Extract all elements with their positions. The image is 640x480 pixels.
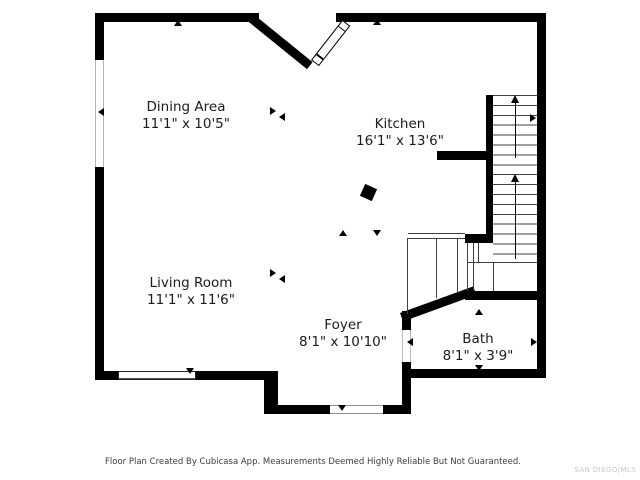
dimension-arrow-down-icon <box>186 368 194 374</box>
dimension-arrow-up-icon <box>475 309 483 315</box>
wall-diagonal-bath <box>400 286 476 321</box>
stairs-arrow-line <box>515 182 516 259</box>
room-name: Bath <box>443 331 514 348</box>
dimension-arrow-left-icon <box>98 108 104 116</box>
room-name: Kitchen <box>356 116 444 133</box>
dimension-arrow-left-icon <box>98 280 104 288</box>
room-dimensions: 8'1" x 3'9" <box>443 348 514 365</box>
room-label-dining: Dining Area 11'1" x 10'5" <box>142 99 230 133</box>
wall-left-lower <box>95 167 104 380</box>
dimension-arrow-left-icon <box>279 275 285 283</box>
column-marker <box>360 184 377 201</box>
stair-winder-line <box>436 238 437 298</box>
wall-stairs-stub <box>465 234 493 243</box>
dimension-arrow-up-icon <box>339 230 347 236</box>
dimension-arrow-down-icon <box>373 230 381 236</box>
dimension-arrow-right-icon <box>270 269 276 277</box>
window-cap-line <box>316 54 323 60</box>
room-label-living: Living Room 11'1" x 11'6" <box>147 275 235 309</box>
bath-door-opening <box>402 330 411 362</box>
window-bottom <box>118 371 196 380</box>
stair-winder-line <box>493 262 494 291</box>
dimension-arrow-up-icon <box>373 19 381 25</box>
wall-bath-bottom <box>402 369 546 378</box>
stairs-arrow-line <box>515 103 516 158</box>
dimension-arrow-right-icon <box>270 107 276 115</box>
dimension-arrow-up-icon <box>174 20 182 26</box>
wall-left-upper <box>95 13 104 60</box>
wall-stairs-left <box>486 95 493 243</box>
floor-plan: Dining Area 11'1" x 10'5" Kitchen 16'1" … <box>0 0 640 480</box>
stairs-up-arrow-icon <box>511 174 519 182</box>
stair-winder-line <box>467 262 537 263</box>
window-cap-line <box>338 26 345 32</box>
room-label-bath: Bath 8'1" x 3'9" <box>443 331 514 365</box>
stair-edge-line <box>407 238 408 314</box>
room-label-kitchen: Kitchen 16'1" x 13'6" <box>356 116 444 150</box>
dimension-arrow-right-icon <box>530 114 536 122</box>
wall-bath-top <box>465 291 546 300</box>
window-diagonal <box>311 20 350 66</box>
dimension-arrow-right-icon <box>531 338 537 346</box>
disclaimer-text: Floor Plan Created By Cubicasa App. Meas… <box>105 457 521 467</box>
stair-winder-line <box>457 238 458 293</box>
room-dimensions: 11'1" x 10'5" <box>142 116 230 133</box>
stair-edge-line <box>408 233 465 234</box>
stair-winder-line <box>473 243 474 291</box>
dimension-arrow-left-icon <box>407 338 413 346</box>
wall-top-right <box>336 13 546 22</box>
wall-diagonal-top <box>246 13 312 69</box>
dimension-arrow-left-icon <box>279 113 285 121</box>
stair-winder-line <box>467 243 468 291</box>
room-label-foyer: Foyer 8'1" x 10'10" <box>299 317 387 351</box>
room-name: Foyer <box>299 317 387 334</box>
wall-kitchen <box>437 151 492 160</box>
room-name: Dining Area <box>142 99 230 116</box>
stairs-up-arrow-icon <box>511 95 519 103</box>
wall-entry-bottom-left <box>264 405 330 414</box>
room-dimensions: 16'1" x 13'6" <box>356 133 444 150</box>
room-name: Living Room <box>147 275 235 292</box>
wall-right <box>537 13 546 378</box>
room-dimensions: 8'1" x 10'10" <box>299 334 387 351</box>
dimension-arrow-down-icon <box>475 365 483 371</box>
mls-watermark: SAN DIEGO|MLS <box>574 466 636 474</box>
dimension-arrow-down-icon <box>338 405 346 411</box>
stair-winder-line <box>478 243 479 262</box>
room-dimensions: 11'1" x 11'6" <box>147 292 235 309</box>
